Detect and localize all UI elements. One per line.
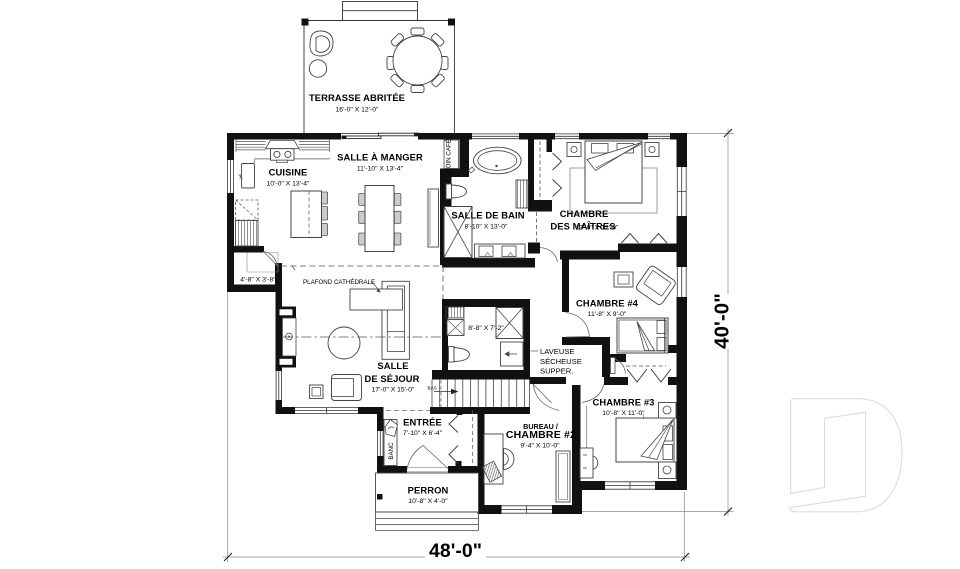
svg-text:CUISINE: CUISINE	[269, 167, 308, 178]
svg-text:SALLE: SALLE	[377, 360, 408, 371]
svg-text:40'-0": 40'-0"	[711, 293, 734, 349]
svg-text:CHAMBRE #4: CHAMBRE #4	[576, 298, 639, 309]
svg-text:ENTRÉE: ENTRÉE	[403, 417, 442, 428]
svg-text:11'-8" X 9'-0": 11'-8" X 9'-0"	[588, 311, 627, 318]
svg-text:17'-0" X 15'-0": 17'-0" X 15'-0"	[372, 387, 416, 394]
svg-text:8'-8" X 7'-2": 8'-8" X 7'-2"	[468, 325, 504, 332]
svg-text:TERRASSE ABRITÉE: TERRASSE ABRITÉE	[309, 92, 405, 103]
svg-text:11'-10" X 13'-4": 11'-10" X 13'-4"	[357, 166, 404, 173]
svg-text:8'-10" X 13'-0": 8'-10" X 13'-0"	[465, 224, 509, 231]
svg-text:10'-0" X 13'-4": 10'-0" X 13'-4"	[267, 181, 311, 188]
svg-text:DE SÉJOUR: DE SÉJOUR	[364, 373, 419, 384]
svg-text:7'-10" X 6'-4": 7'-10" X 6'-4"	[403, 430, 443, 437]
svg-text:CHAMBRE #3: CHAMBRE #3	[593, 397, 655, 408]
svg-text:BAS: BAS	[428, 386, 437, 391]
svg-text:PLAFOND CATHÉDRALE: PLAFOND CATHÉDRALE	[303, 279, 375, 286]
svg-text:9'-4" X 10'-0": 9'-4" X 10'-0"	[520, 443, 560, 450]
svg-text:SALLE À MANGER: SALLE À MANGER	[337, 152, 423, 163]
svg-text:48'-0": 48'-0"	[429, 540, 482, 562]
svg-text:BANC: BANC	[388, 442, 395, 460]
svg-text:SUPPER.: SUPPER.	[540, 367, 573, 376]
svg-text:16'-0" X 12'-0": 16'-0" X 12'-0"	[336, 107, 380, 114]
svg-text:SALLE DE BAIN: SALLE DE BAIN	[451, 210, 524, 221]
svg-text:CHAMBRE #2: CHAMBRE #2	[506, 429, 576, 441]
svg-text:DES MAÎTRES: DES MAÎTRES	[550, 221, 615, 232]
svg-text:PERRON: PERRON	[408, 485, 449, 496]
svg-text:10'-8" X 4'-0": 10'-8" X 4'-0"	[408, 498, 448, 505]
svg-text:SÉCHEUSE: SÉCHEUSE	[540, 357, 582, 366]
svg-text:CHAMBRE: CHAMBRE	[560, 208, 609, 219]
svg-text:4'-8" X 3'-8": 4'-8" X 3'-8"	[240, 277, 276, 284]
svg-text:COIN CAFÉ: COIN CAFÉ	[446, 139, 453, 173]
svg-text:LAVEUSE: LAVEUSE	[540, 347, 574, 356]
svg-text:10'-8" X 11'-0": 10'-8" X 11'-0"	[602, 410, 645, 417]
